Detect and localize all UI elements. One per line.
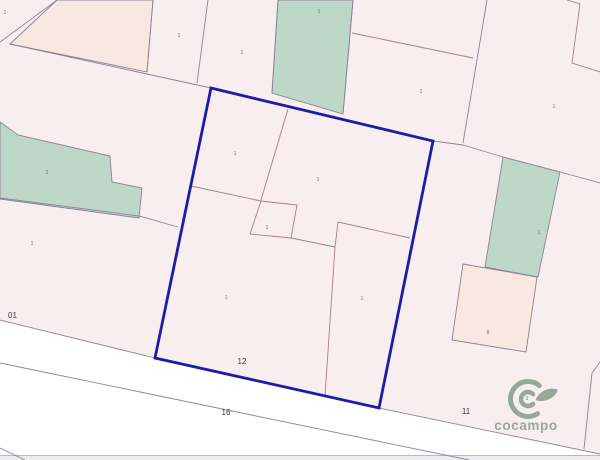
parcel-number-01: 01 xyxy=(8,311,17,320)
subparcel-label: 1 xyxy=(225,295,228,301)
subparcel-label: 1 xyxy=(178,33,181,39)
subparcel-label: 1 xyxy=(526,396,529,402)
subparcel-label: 8 xyxy=(487,330,490,336)
bottom-strip-line xyxy=(0,455,600,456)
subparcel-label: 1 xyxy=(241,50,244,56)
subparcel-label: 1 xyxy=(4,10,7,16)
parcel-number-11: 11 xyxy=(462,407,471,416)
subparcel-label: 1 xyxy=(361,296,364,302)
map-viewport[interactable]: cocampo 011216111111111111111181 xyxy=(0,0,600,460)
subparcel-label: 1 xyxy=(538,230,541,236)
bottom-strip xyxy=(0,456,600,460)
parcel-peach-right[interactable] xyxy=(452,264,537,352)
subparcel-label: 1 xyxy=(266,225,269,231)
parcel-green-top[interactable] xyxy=(272,0,353,114)
parcel-number-12: 12 xyxy=(238,357,247,366)
subparcel-label: 1 xyxy=(553,104,556,110)
subparcel-label: 1 xyxy=(317,177,320,183)
subparcel-label: 1 xyxy=(234,151,237,157)
road-number-16: 16 xyxy=(222,408,231,417)
cocampo-logo-text: cocampo xyxy=(494,418,557,433)
cadastral-map[interactable]: cocampo 011216111111111111111181 xyxy=(0,0,600,460)
subparcel-label: 1 xyxy=(31,241,34,247)
subparcel-label: 1 xyxy=(420,89,423,95)
subparcel-label: 1 xyxy=(46,170,49,176)
subparcel-label: 1 xyxy=(318,9,321,15)
